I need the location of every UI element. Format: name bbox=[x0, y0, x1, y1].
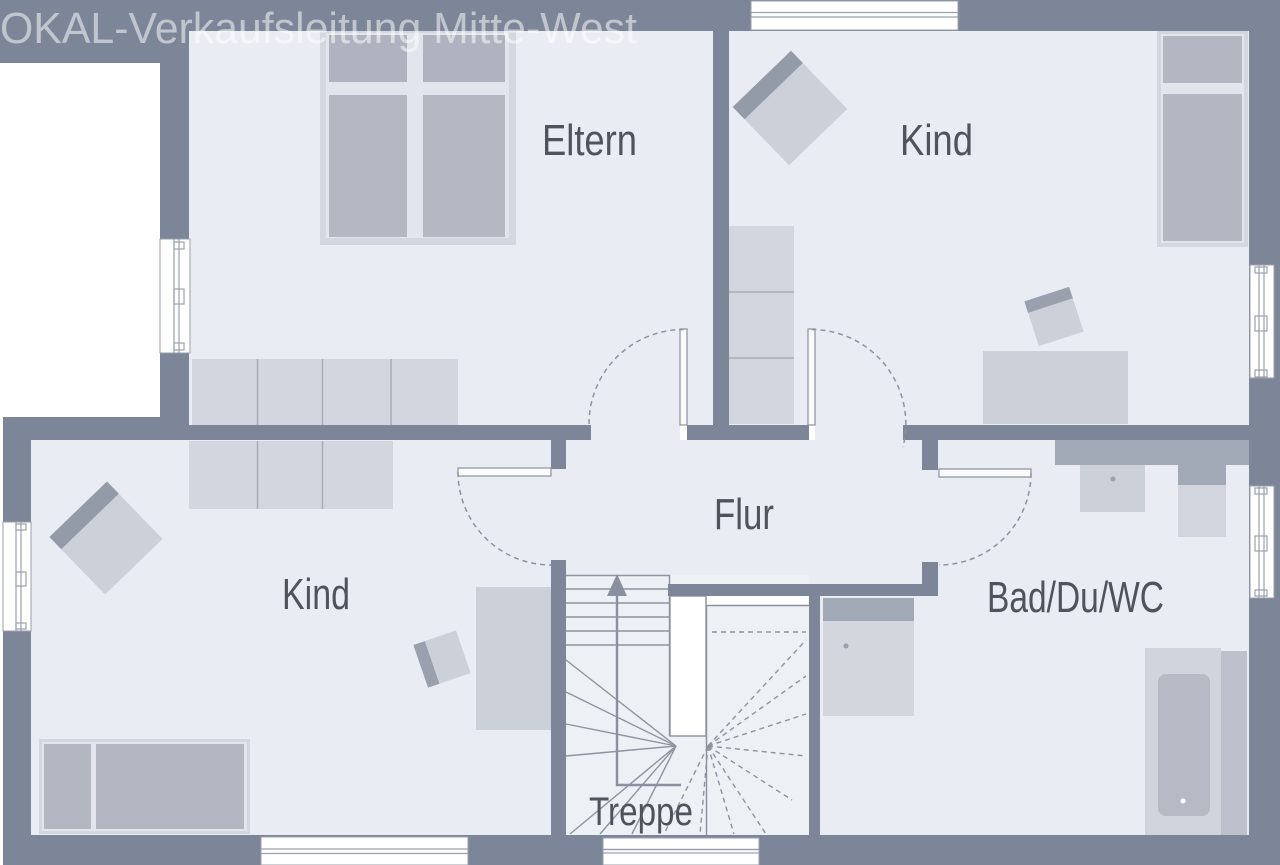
svg-text:Bad/Du/WC: Bad/Du/WC bbox=[987, 573, 1164, 622]
svg-text:OKAL-Verkaufsleitung Mitte-Wes: OKAL-Verkaufsleitung Mitte-West bbox=[0, 4, 637, 53]
svg-text:Kind: Kind bbox=[900, 116, 973, 165]
svg-text:Flur: Flur bbox=[714, 490, 774, 539]
svg-text:Treppe: Treppe bbox=[589, 790, 693, 834]
svg-text:Kind: Kind bbox=[282, 570, 350, 619]
svg-text:Eltern: Eltern bbox=[542, 116, 637, 165]
